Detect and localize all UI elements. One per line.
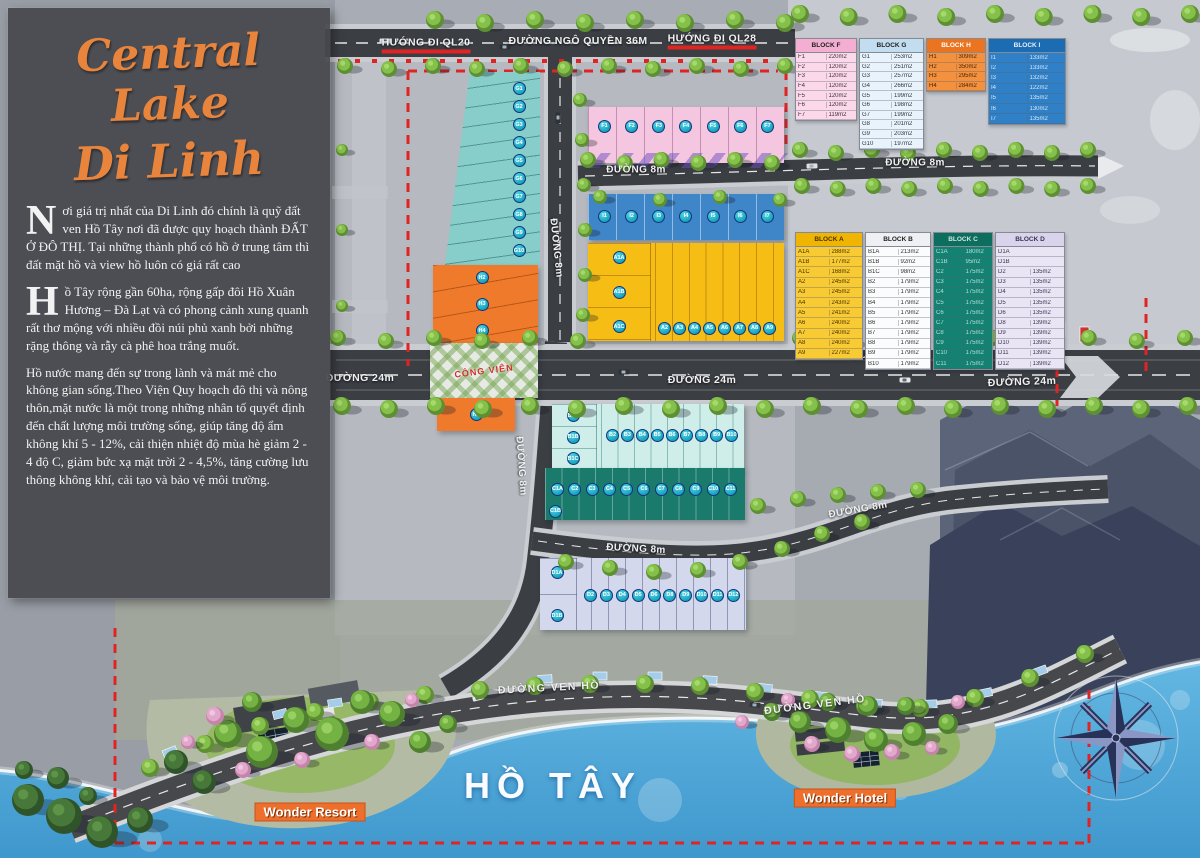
lot-badge-d11: D11 [711, 589, 724, 602]
lot-badge-i4: I4 [679, 210, 692, 223]
road-label-ql28: HƯỚNG ĐI QL28 [668, 33, 757, 50]
lot-badge-g7: G7 [513, 190, 526, 203]
road-label-8m: ĐƯỜNG 8m [885, 158, 944, 169]
table-row: G6198m2 [860, 101, 923, 111]
lot-badge-g1: G1 [513, 82, 526, 95]
table-row: F5120m2 [796, 91, 856, 101]
table-row: B8179m2 [866, 339, 930, 349]
lot-badge-f1: F1 [598, 120, 611, 133]
info-panel: Central Lake Di Linh Nơi giá trị nhất củ… [8, 8, 330, 598]
lot-badge-d4: D4 [616, 589, 629, 602]
block-d-lots: D1AD1B D2D3D4D5D6D8D9D10D11D12 [540, 558, 746, 630]
table-row: F1220m2 [796, 53, 856, 63]
block-i-badges: I1I2I3I4I5I6I7 [598, 209, 774, 223]
table-row: B4179m2 [866, 298, 930, 308]
block-c-badges: C1AC2C3C4C5C6C7C8C9C10C11 [551, 482, 737, 496]
block-f-badges: F1F2F3F4F5F6F7 [598, 119, 774, 133]
block-h1-lot: H1 [437, 398, 515, 431]
lot-badge-i6: I6 [734, 210, 747, 223]
area-table-group-abcd: BLOCK AA1A288m2A1B177m2A1C168m2A2245m2A3… [795, 232, 1065, 370]
lot-badge-c1b: C1B [549, 505, 562, 518]
lot-badge-d1a: D1A [551, 566, 564, 579]
lot-badge-g4: G4 [513, 136, 526, 149]
table-row: D1A [996, 247, 1064, 257]
dropcap: H [26, 286, 59, 319]
lot-badge-a2: A2 [658, 322, 671, 335]
table-row: C8175m2 [934, 329, 992, 339]
table-row: D6135m2 [996, 308, 1064, 318]
lot-badge-d8: D8 [663, 589, 676, 602]
lake-name: HỒ TÂY [464, 765, 642, 807]
lot-badge-b1a: B1A [567, 409, 580, 422]
lot-badge-a3: A3 [673, 322, 686, 335]
poi-wonder-resort: Wonder Resort [255, 803, 366, 822]
side-road [332, 300, 388, 313]
table-row: D11139m2 [996, 349, 1064, 359]
table-row: I3132m2 [989, 73, 1065, 83]
lot-badge-b7: B7 [680, 429, 693, 442]
lot-badge-b4: B4 [636, 429, 649, 442]
table-row: G2251m2 [860, 63, 923, 73]
lot-badge-d6: D6 [648, 589, 661, 602]
table-row: C4175m2 [934, 288, 992, 298]
lot-badge-a9: A9 [763, 322, 776, 335]
road-label-24m: ĐƯỜNG 24m [326, 372, 395, 384]
table-row: C7175m2 [934, 318, 992, 328]
road-label-8m: ĐƯỜNG 8m [606, 165, 665, 176]
lot-badge-c8: C8 [672, 483, 685, 496]
table-row: I6130m2 [989, 104, 1065, 114]
lot-badge-d10: D10 [695, 589, 708, 602]
block-table-header: BLOCK C [934, 233, 992, 247]
project-title-line2: Di Linh [25, 129, 313, 193]
table-row: A5241m2 [796, 308, 862, 318]
table-row: A1A288m2 [796, 247, 862, 257]
table-row: H3295m2 [927, 72, 985, 82]
lot-badge-a5: A5 [703, 322, 716, 335]
block-f-lots: F1F2F3F4F5F6F7 [588, 107, 784, 163]
table-row: D1B [996, 257, 1064, 267]
lot-badge-b1c: B1C [567, 452, 580, 465]
table-row: F3120m2 [796, 72, 856, 82]
table-row: F6120m2 [796, 101, 856, 111]
table-row: B1C98m2 [866, 267, 930, 277]
table-row: I2133m2 [989, 63, 1065, 73]
table-row: D2135m2 [996, 267, 1064, 277]
table-row: B3179m2 [866, 288, 930, 298]
table-row: D4135m2 [996, 288, 1064, 298]
block-d-row-badges: D2D3D4D5D6D8D9D10D11D12 [584, 588, 740, 602]
block-c-lots: C1AC2C3C4C5C6C7C8C9C10C11 C1B [545, 468, 745, 520]
lot-badge-a4: A4 [688, 322, 701, 335]
lot-badge-c11: C11 [724, 483, 737, 496]
table-row: G4266m2 [860, 82, 923, 92]
block-a-lots: A1AA1BA1C A2A3A4A5A6A7A8A9 [588, 243, 784, 341]
lot-badge-d1b: D1B [551, 609, 564, 622]
table-row: F2120m2 [796, 63, 856, 73]
lot-badge-g9: G9 [513, 226, 526, 239]
lot-badge-c6: C6 [637, 483, 650, 496]
lot-badge-d12: D12 [727, 589, 740, 602]
table-row: C10175m2 [934, 349, 992, 359]
table-row: D8139m2 [996, 318, 1064, 328]
table-row: A6240m2 [796, 318, 862, 328]
block-table-header: BLOCK A [796, 233, 862, 247]
lot-badge-a8: A8 [748, 322, 761, 335]
lot-badge-a1b: A1B [613, 286, 626, 299]
lot-badge-h2: H2 [476, 271, 489, 284]
table-block-h: BLOCK HH1309m2H2350m2H3295m2H4284m2 [926, 38, 986, 92]
block-d-left-badges: D1AD1B [550, 566, 564, 622]
road-label-ql20: HƯỚNG ĐI QL20 [382, 37, 471, 54]
table-row: C11175m2 [934, 359, 992, 369]
lot-badge-c9: C9 [689, 483, 702, 496]
block-b-row-badges: B2B3B4B5B6B7B8B9B10 [606, 428, 738, 442]
lot-badge-f2: F2 [625, 120, 638, 133]
lot-badge-g8: G8 [513, 208, 526, 221]
table-row: H4284m2 [927, 82, 985, 92]
poi-wonder-hotel: Wonder Hotel [794, 789, 896, 808]
table-row: B1B92m2 [866, 257, 930, 267]
block-table-header: BLOCK D [996, 233, 1064, 247]
table-row: D10139m2 [996, 339, 1064, 349]
table-row: I1133m2 [989, 53, 1065, 63]
lot-badge-d2: D2 [584, 589, 597, 602]
road-label-24m: ĐƯỜNG 24m [988, 375, 1057, 389]
lot-badge-c10: C10 [707, 483, 720, 496]
lot-badge-i2: I2 [625, 210, 638, 223]
table-row: G3257m2 [860, 72, 923, 82]
lot-badge-f7: F7 [761, 120, 774, 133]
lot-badge-c1a: C1A [551, 483, 564, 496]
red-underline [382, 50, 471, 54]
lot-badge-c5: C5 [620, 483, 633, 496]
table-row: F7119m2 [796, 111, 856, 121]
block-b-lots: B1AB1BB1C B2B3B4B5B6B7B8B9B10 [552, 404, 744, 470]
table-block-a: BLOCK AA1A288m2A1B177m2A1C168m2A2245m2A3… [795, 232, 863, 360]
lot-badge-f6: F6 [734, 120, 747, 133]
table-row: A1B177m2 [796, 257, 862, 267]
dropcap: N [26, 205, 56, 238]
red-underline [668, 46, 757, 50]
lot-badge-f5: F5 [707, 120, 720, 133]
block-a-left-badges: A1AA1BA1C [612, 251, 626, 333]
block-a-row-badges: A2A3A4A5A6A7A8A9 [658, 321, 776, 335]
table-row: B7179m2 [866, 329, 930, 339]
lot-badge-c2: C2 [568, 483, 581, 496]
table-block-b: BLOCK BB1A213m2B1B92m2B1C98m2B2179m2B317… [865, 232, 931, 370]
block-table-header: BLOCK H [927, 39, 985, 53]
table-row: C2175m2 [934, 267, 992, 277]
lot-badge-b1b: B1B [567, 431, 580, 444]
lot-badge-b10: B10 [725, 429, 738, 442]
table-row: B10179m2 [866, 359, 930, 369]
table-block-i: BLOCK II1133m2I2133m2I3132m2I4122m2I5135… [988, 38, 1066, 125]
road-label-ngo-quyen: ĐƯỜNG NGÔ QUYỀN 36M [508, 35, 647, 47]
table-row: C1B95m2 [934, 257, 992, 267]
table-block-c: BLOCK CC1A180m2C1B95m2C2175m2C3175m2C417… [933, 232, 993, 370]
table-row: G9203m2 [860, 130, 923, 140]
block-h-lots: H2H3H4 [433, 265, 538, 343]
table-row: I4122m2 [989, 84, 1065, 94]
lot-badge-i1: I1 [598, 210, 611, 223]
park-label: CÔNG VIÊN [454, 362, 514, 379]
table-row: B5179m2 [866, 308, 930, 318]
lot-badge-c3: C3 [586, 483, 599, 496]
table-row: C5175m2 [934, 298, 992, 308]
lot-badge-g6: G6 [513, 172, 526, 185]
side-road [332, 186, 388, 199]
table-row: C6175m2 [934, 308, 992, 318]
project-title-line1: Central Lake [24, 23, 313, 135]
block-h-badges: H2H3H4 [475, 271, 489, 337]
lot-badge-a1c: A1C [613, 320, 626, 333]
block-table-header: BLOCK G [860, 39, 923, 53]
table-row: A8240m2 [796, 339, 862, 349]
table-row: D12139m2 [996, 359, 1064, 369]
table-row: A1C168m2 [796, 267, 862, 277]
block-table-header: BLOCK I [989, 39, 1065, 53]
lot-badge-b9: B9 [710, 429, 723, 442]
block-g-badges: G1G2G3G4G5G6G7G8G9G10 [512, 82, 526, 257]
lot-badge-c4: C4 [603, 483, 616, 496]
table-block-g: BLOCK GG1253m2G2251m2G3257m2G4266m2G5199… [859, 38, 924, 150]
table-block-f: BLOCK FF1220m2F2120m2F3120m2F4120m2F5120… [795, 38, 857, 121]
lot-badge-a1a: A1A [613, 251, 626, 264]
table-row: D9139m2 [996, 329, 1064, 339]
table-row: G1253m2 [860, 53, 923, 63]
table-row: C9175m2 [934, 339, 992, 349]
table-row: C1A180m2 [934, 247, 992, 257]
block-i-lots: I1I2I3I4I5I6I7 [588, 194, 784, 240]
table-row: G7199m2 [860, 111, 923, 121]
table-row: A2245m2 [796, 278, 862, 288]
lot-badge-g3: G3 [513, 118, 526, 131]
block-table-header: BLOCK B [866, 233, 930, 247]
table-row: I7135m2 [989, 114, 1065, 124]
lot-badge-i7: I7 [761, 210, 774, 223]
lot-badge-d9: D9 [679, 589, 692, 602]
lot-badge-i5: I5 [707, 210, 720, 223]
table-row: H2350m2 [927, 63, 985, 73]
lot-badge-d5: D5 [632, 589, 645, 602]
table-row: D3135m2 [996, 278, 1064, 288]
table-block-d: BLOCK DD1AD1BD2135m2D3135m2D4135m2D5135m… [995, 232, 1065, 370]
table-row: B2179m2 [866, 278, 930, 288]
intro-paragraph-2: Hồ Tây rộng gần 60ha, rộng gấp đôi Hồ Xu… [26, 283, 312, 355]
lot-badge-c7: C7 [655, 483, 668, 496]
area-table-group-fghi: BLOCK FF1220m2F2120m2F3120m2F4120m2F5120… [795, 38, 1066, 150]
table-row: A7240m2 [796, 329, 862, 339]
table-row: A4243m2 [796, 298, 862, 308]
intro-paragraph-1: Nơi giá trị nhất của Di Linh đó chính là… [26, 202, 312, 274]
lot-badge-b8: B8 [695, 429, 708, 442]
lot-badge-b5: B5 [651, 429, 664, 442]
intro-paragraph-3: Hồ nước mang đến sự trong lành và mát mẻ… [26, 364, 312, 490]
side-road [352, 60, 386, 362]
road-label-24m: ĐƯỜNG 24m [668, 374, 737, 386]
table-row: B9179m2 [866, 349, 930, 359]
central-park: CÔNG VIÊN [430, 343, 538, 398]
lot-badge-d3: D3 [600, 589, 613, 602]
table-row: F4120m2 [796, 82, 856, 92]
lot-badge-f4: F4 [679, 120, 692, 133]
lot-badge-i3: I3 [652, 210, 665, 223]
lot-badge-b6: B6 [666, 429, 679, 442]
table-row: A3245m2 [796, 288, 862, 298]
lot-badge-h4: H4 [476, 324, 489, 337]
lot-badge-f3: F3 [652, 120, 665, 133]
lot-badge-b3: B3 [621, 429, 634, 442]
table-row: C3175m2 [934, 278, 992, 288]
lot-badge-a7: A7 [733, 322, 746, 335]
lot-badge-g5: G5 [513, 154, 526, 167]
table-row: G10197m2 [860, 139, 923, 149]
table-row: B1A213m2 [866, 247, 930, 257]
lot-badge-a6: A6 [718, 322, 731, 335]
table-row: G8201m2 [860, 120, 923, 130]
block-c1b-badge: C1B [549, 504, 563, 518]
lot-badge-b2: B2 [606, 429, 619, 442]
table-row: H1309m2 [927, 53, 985, 63]
table-row: I5135m2 [989, 94, 1065, 104]
table-row: G5199m2 [860, 91, 923, 101]
table-row: D5135m2 [996, 298, 1064, 308]
block-table-header: BLOCK F [796, 39, 856, 53]
lot-badge-h3: H3 [476, 298, 489, 311]
lot-badge-g2: G2 [513, 100, 526, 113]
lot-badge-g10: G10 [513, 244, 526, 257]
table-row: A9227m2 [796, 349, 862, 359]
block-b-left-badges: B1AB1BB1C [566, 409, 580, 465]
masterplan-map: G1G2G3G4G5G6G7G8G9G10 H2H3H4 CÔNG VIÊN H… [0, 0, 1200, 858]
lot-badge-h1: H1 [470, 408, 483, 421]
table-row: B6179m2 [866, 318, 930, 328]
block-h1-badge: H1 [437, 398, 515, 431]
